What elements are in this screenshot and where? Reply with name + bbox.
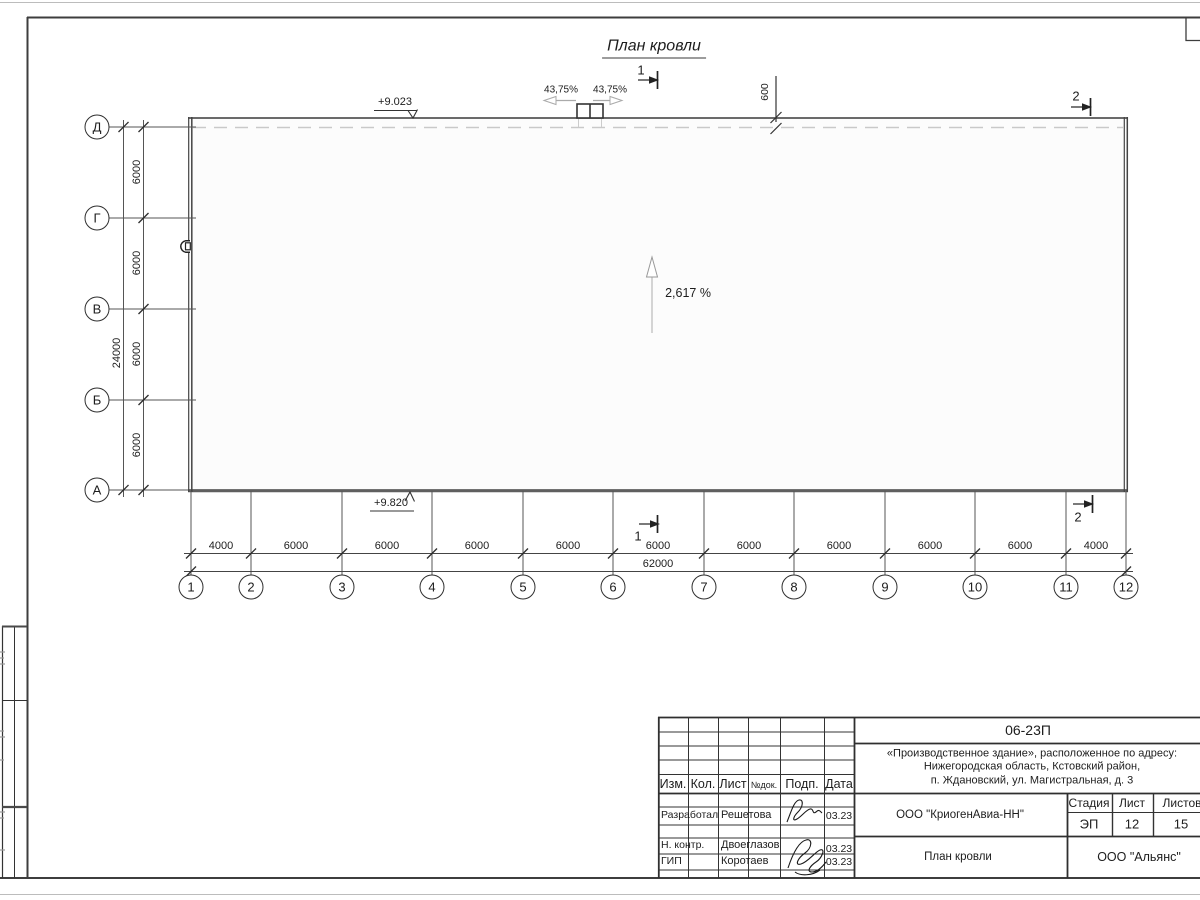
row-dim-label: 6000 bbox=[131, 433, 143, 457]
signature-strokes bbox=[787, 800, 826, 875]
col-axis-bubble: 12 bbox=[1114, 575, 1139, 600]
row-axis-label: Б bbox=[93, 393, 102, 408]
page-title: План кровли bbox=[602, 38, 706, 59]
signer-role: Н. контр. bbox=[661, 839, 704, 851]
section-mark-2-top: 2 bbox=[1072, 89, 1079, 104]
parapet-dim-label: 600 bbox=[759, 83, 771, 101]
col-axis-bubble: 1 bbox=[179, 575, 204, 600]
signer-date: 03.23 bbox=[826, 810, 852, 822]
col-dim-label: 6000 bbox=[646, 540, 670, 552]
row-axis-bubble: В bbox=[85, 297, 110, 322]
titleblock-col-podp: Подп. bbox=[785, 777, 818, 791]
col-dim-label: 6000 bbox=[918, 540, 942, 552]
row-axis-label: А bbox=[93, 483, 102, 498]
row-axis-label: В bbox=[93, 302, 102, 317]
titleblock-col-list: Лист bbox=[719, 777, 746, 791]
signer-date: 03.23 bbox=[826, 843, 852, 855]
project-address-line3: п. Ждановский, ул. Магистральная, д. 3 bbox=[931, 774, 1134, 788]
sheet-value: 12 bbox=[1125, 817, 1139, 832]
section-mark-1-bottom: 1 bbox=[634, 529, 641, 544]
signer-name: Решетова bbox=[721, 809, 771, 821]
stage-label: Стадия bbox=[1069, 796, 1110, 810]
sheets-value: 15 bbox=[1174, 817, 1188, 832]
col-axis-label: 12 bbox=[1119, 580, 1133, 595]
row-dim-label: 6000 bbox=[131, 342, 143, 366]
row-dim-label: 6000 bbox=[131, 160, 143, 184]
row-axis-bubble: А bbox=[85, 478, 110, 503]
section-mark-1-top: 1 bbox=[637, 63, 644, 78]
col-axis-bubble: 9 bbox=[873, 575, 898, 600]
signer-role: Разработал bbox=[661, 809, 718, 821]
col-axis-bubble: 5 bbox=[511, 575, 536, 600]
col-axis-bubble: 3 bbox=[330, 575, 355, 600]
sheet-label: Лист bbox=[1119, 796, 1145, 810]
col-axis-bubble: 11 bbox=[1054, 575, 1079, 600]
col-dim-label: 6000 bbox=[375, 540, 399, 552]
signer-name: Двоеглазов bbox=[721, 839, 779, 851]
col-axis-label: 7 bbox=[700, 580, 707, 595]
col-total-dim-label: 62000 bbox=[643, 558, 674, 570]
col-dim-label: 6000 bbox=[284, 540, 308, 552]
titleblock-col-izm: Изм. bbox=[660, 777, 687, 791]
col-axis-label: 6 bbox=[609, 580, 616, 595]
col-axis-label: 3 bbox=[338, 580, 345, 595]
col-axis-bubble: 8 bbox=[782, 575, 807, 600]
sheets-label: Листов bbox=[1163, 796, 1200, 810]
col-axis-label: 2 bbox=[247, 580, 254, 595]
stage-value: ЭП bbox=[1080, 817, 1099, 832]
signer-role: ГИП bbox=[661, 855, 682, 867]
roof-slope-label: 2,617 % bbox=[665, 286, 711, 300]
row-axis-label: Г bbox=[93, 211, 100, 226]
drawing-name: План кровли bbox=[924, 851, 992, 863]
elevation-mark-top: +9.023 bbox=[378, 96, 412, 108]
col-dim-label: 6000 bbox=[827, 540, 851, 552]
doc-number: 06-23П bbox=[1005, 722, 1051, 738]
signer-date: 03.23 bbox=[826, 856, 852, 868]
col-axis-label: 8 bbox=[790, 580, 797, 595]
drawing-sheet: План кровли +9.023 +9.820 43,75% 43,75% … bbox=[0, 0, 1200, 900]
col-dim-label: 6000 bbox=[465, 540, 489, 552]
col-axis-bubble: 7 bbox=[692, 575, 717, 600]
col-dim-label: 6000 bbox=[556, 540, 580, 552]
col-dim-label: 6000 bbox=[1008, 540, 1032, 552]
row-dim-label: 6000 bbox=[131, 251, 143, 275]
col-axis-label: 1 bbox=[187, 580, 194, 595]
titleblock-col-data: Дата bbox=[825, 777, 853, 791]
col-axis-label: 9 bbox=[881, 580, 888, 595]
row-axis-bubble: Д bbox=[85, 115, 110, 140]
signer-name: Коротаев bbox=[721, 855, 769, 867]
vent-slope-right-label: 43,75% bbox=[593, 85, 627, 96]
col-axis-bubble: 10 bbox=[963, 575, 988, 600]
col-axis-bubble: 2 bbox=[239, 575, 264, 600]
col-dim-label: 4000 bbox=[209, 540, 233, 552]
titleblock-col-doc: №док. bbox=[751, 780, 777, 790]
titleblock-col-kol: Кол. bbox=[691, 777, 716, 791]
client-name: ООО "КриогенАвиа-НН" bbox=[896, 809, 1024, 821]
col-axis-label: 4 bbox=[428, 580, 435, 595]
project-address-line2: Нижегородская область, Кстовский район, bbox=[924, 760, 1140, 774]
col-dim-label: 4000 bbox=[1084, 540, 1108, 552]
row-axis-bubble: Б bbox=[85, 388, 110, 413]
elevation-mark-bottom: +9.820 bbox=[374, 497, 408, 509]
col-dim-label: 6000 bbox=[737, 540, 761, 552]
company-name: ООО "Альянс" bbox=[1097, 850, 1181, 864]
col-axis-label: 5 bbox=[519, 580, 526, 595]
row-axis-label: Д bbox=[93, 120, 102, 135]
section-mark-2-bottom: 2 bbox=[1074, 510, 1081, 525]
row-axis-bubble: Г bbox=[85, 206, 110, 231]
col-axis-label: 10 bbox=[968, 580, 982, 595]
row-total-dim-label: 24000 bbox=[111, 338, 123, 369]
vent-slope-left-label: 43,75% bbox=[544, 85, 578, 96]
project-address-line1: «Производственное здание», расположенное… bbox=[887, 747, 1177, 761]
col-axis-bubble: 6 bbox=[601, 575, 626, 600]
col-axis-bubble: 4 bbox=[420, 575, 445, 600]
col-axis-label: 11 bbox=[1059, 580, 1073, 595]
